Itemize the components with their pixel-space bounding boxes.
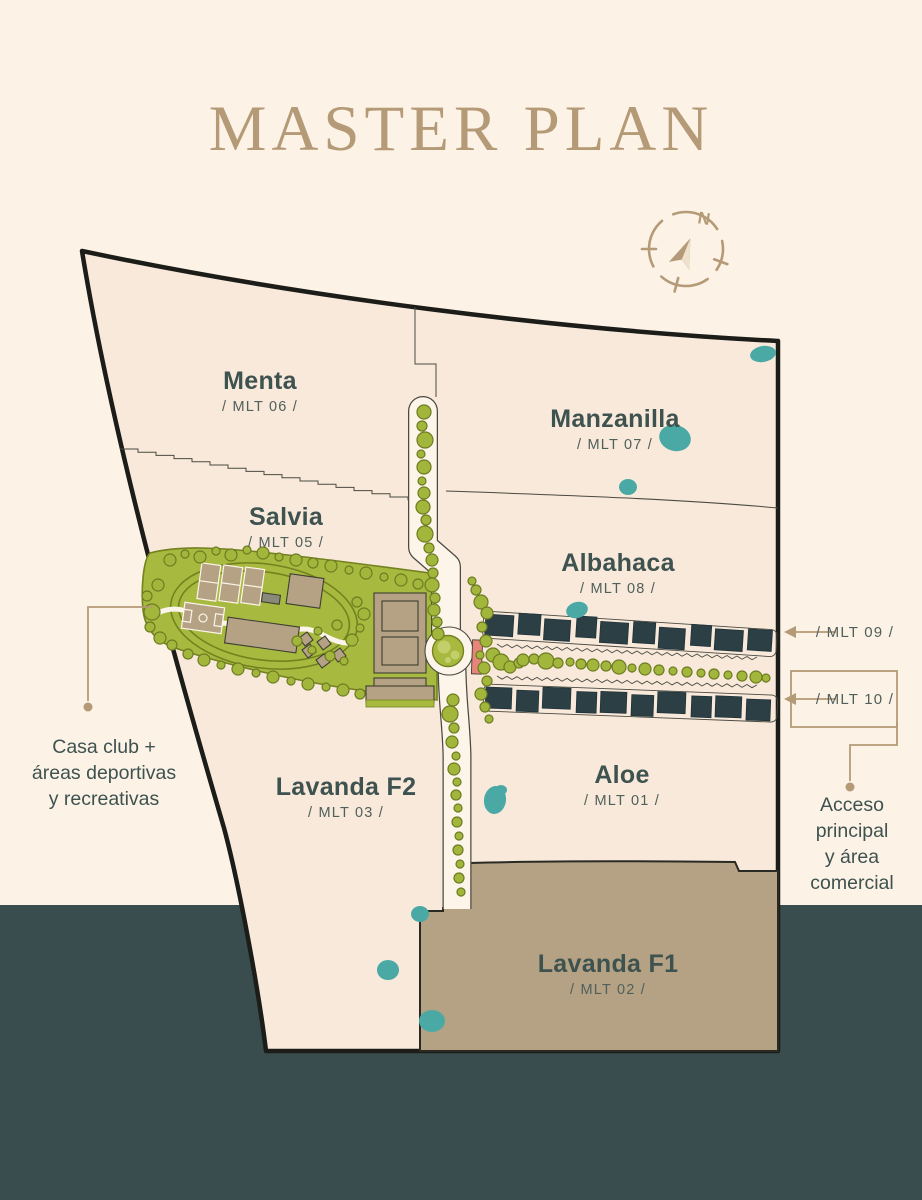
commercial-strip (366, 686, 434, 702)
tree-icon (446, 736, 458, 748)
tree-icon (154, 632, 166, 644)
tree-icon (421, 515, 431, 525)
tree-icon (417, 421, 427, 431)
tree-icon (217, 661, 225, 669)
tree-icon (654, 665, 664, 675)
tree-icon (252, 669, 260, 677)
club-building (286, 574, 324, 608)
mlt09-arrowhead-icon (784, 626, 796, 638)
callout-mlt09: / MLT 09 / (812, 624, 898, 641)
basketball-court (181, 602, 224, 633)
tree-icon (198, 654, 210, 666)
callout-mlt10: / MLT 10 / (812, 691, 898, 708)
tree-icon (538, 653, 554, 669)
tree-icon (416, 500, 430, 514)
acceso-note-line: Acceso (790, 792, 914, 818)
tree-icon (257, 547, 269, 559)
tree-icon (418, 487, 430, 499)
tree-icon (325, 560, 337, 572)
tree-icon (455, 832, 463, 840)
house-block (542, 687, 571, 709)
master-plan-page: MASTER PLAN (0, 0, 922, 1200)
tree-icon (453, 845, 463, 855)
tree-icon (576, 659, 586, 669)
tree-icon (225, 549, 237, 561)
tree-icon (428, 604, 440, 616)
acceso-note-line: comercial (790, 870, 914, 896)
compass-icon: N (642, 208, 727, 291)
tree-icon (417, 405, 431, 419)
house-block (747, 629, 772, 652)
tree-icon (709, 669, 719, 679)
roundabout-shrub (451, 651, 460, 660)
tree-icon (448, 763, 460, 775)
tree-icon (451, 790, 461, 800)
tree-icon (601, 661, 611, 671)
tree-icon (181, 550, 189, 558)
tree-icon (566, 658, 574, 666)
tree-icon (232, 663, 244, 675)
tree-icon (380, 573, 388, 581)
water-blob (619, 479, 637, 495)
house-block (746, 699, 771, 721)
tree-icon (340, 657, 348, 665)
tree-icon (426, 554, 438, 566)
casa-club-note-line: áreas deportivas (6, 760, 202, 786)
house-block (631, 695, 654, 717)
tree-icon (322, 683, 330, 691)
casa-club-note: Casa club + áreas deportivas y recreativ… (6, 734, 202, 812)
acceso-dot (846, 783, 855, 792)
house-block (715, 696, 742, 718)
tree-icon (275, 553, 283, 561)
house-block (690, 624, 711, 646)
tree-icon (337, 684, 349, 696)
roundabout-shrub (438, 641, 451, 654)
tree-icon (424, 543, 434, 553)
tree-icon (750, 671, 762, 683)
water-blob (419, 1010, 445, 1032)
tree-icon (308, 646, 316, 654)
tree-icon (425, 578, 439, 592)
tree-icon (669, 667, 677, 675)
tree-icon (314, 627, 322, 635)
water-blob (411, 906, 429, 922)
tree-icon (167, 640, 177, 650)
site-map: N (0, 0, 922, 1200)
tree-icon (145, 622, 155, 632)
tennis-courts (197, 561, 265, 607)
water-blob (377, 960, 399, 980)
tree-icon (290, 554, 302, 566)
tree-icon (454, 804, 462, 812)
compass-north-label: N (696, 208, 711, 229)
house-block (658, 627, 685, 650)
tree-icon (360, 567, 372, 579)
acceso-note-line: y área (790, 844, 914, 870)
mlt10-arrowhead-icon (784, 693, 796, 705)
tree-icon (468, 577, 476, 585)
tree-icon (457, 888, 465, 896)
tree-icon (447, 694, 459, 706)
tree-icon (697, 669, 705, 677)
green-strip (366, 700, 434, 707)
tree-icon (480, 635, 492, 647)
tree-icon (478, 662, 490, 674)
house-block (600, 691, 627, 713)
house-block (576, 616, 597, 638)
tree-icon (517, 654, 529, 666)
compass-tick (675, 278, 679, 292)
house-block (691, 696, 712, 718)
tree-icon (428, 568, 438, 578)
tree-icon (471, 585, 481, 595)
tree-icon (449, 723, 459, 733)
tree-icon (355, 689, 365, 699)
tree-icon (413, 579, 423, 589)
casa-club-connector (88, 607, 152, 701)
casa-club-dot (84, 703, 93, 712)
house-block (657, 692, 686, 714)
tree-icon (485, 715, 493, 723)
tree-icon (417, 450, 425, 458)
house-block (518, 613, 541, 635)
house-block (576, 691, 597, 713)
tree-icon (454, 873, 464, 883)
casa-club-note-line: Casa club + (6, 734, 202, 760)
tree-icon (529, 654, 539, 664)
acceso-note: Acceso principal y área comercial (790, 792, 914, 896)
compass-needle-icon (669, 234, 701, 270)
tree-icon (432, 617, 442, 627)
tree-icon (356, 624, 364, 632)
tree-icon (152, 579, 164, 591)
tree-icon (308, 558, 318, 568)
tree-icon (456, 860, 464, 868)
needle-dark (669, 234, 701, 270)
tree-icon (587, 659, 599, 671)
tree-icon (302, 678, 314, 690)
acceso-note-line: principal (790, 818, 914, 844)
tree-icon (345, 566, 353, 574)
court-floor (181, 602, 224, 633)
tree-icon (325, 651, 335, 661)
lavanda-f1-area (420, 861, 778, 1051)
tree-icon (346, 634, 358, 646)
tree-icon (142, 591, 152, 601)
tree-icon (480, 702, 490, 712)
tree-icon (432, 628, 444, 640)
water-blob (495, 785, 507, 795)
tree-icon (639, 663, 651, 675)
tree-icon (724, 671, 732, 679)
tree-icon (482, 676, 492, 686)
house-block (543, 619, 570, 642)
tree-icon (287, 677, 295, 685)
tree-icon (737, 671, 747, 681)
tree-icon (332, 620, 342, 630)
tree-icon (628, 664, 636, 672)
tree-icon (194, 551, 206, 563)
tree-icon (452, 817, 462, 827)
tree-icon (395, 574, 407, 586)
tree-icon (292, 636, 302, 646)
tree-icon (417, 526, 433, 542)
tree-icon (476, 651, 484, 659)
tree-icon (430, 593, 440, 603)
tree-icon (553, 658, 563, 668)
tree-icon (183, 649, 193, 659)
tree-icon (417, 432, 433, 448)
casa-club-note-line: y recreativas (6, 786, 202, 812)
tree-icon (358, 608, 370, 620)
tree-icon (164, 554, 176, 566)
roundabout-shrub (445, 657, 451, 663)
tree-icon (417, 460, 431, 474)
house-block (516, 690, 539, 712)
tree-icon (418, 477, 426, 485)
club-pavilion (261, 593, 280, 604)
tree-icon (243, 546, 251, 554)
house-block (599, 621, 628, 644)
tree-icon (481, 607, 493, 619)
tree-icon (452, 752, 460, 760)
tree-icon (762, 674, 770, 682)
commercial-buildings (366, 593, 434, 707)
house-block (632, 622, 655, 644)
house-block (714, 629, 743, 652)
tree-icon (267, 671, 279, 683)
tree-icon (352, 597, 362, 607)
tree-icon (477, 622, 487, 632)
tree-icon (453, 778, 461, 786)
tree-icon (442, 706, 458, 722)
acceso-connector (850, 722, 897, 781)
tree-icon (682, 667, 692, 677)
tree-icon (212, 547, 220, 555)
tree-icon (475, 688, 487, 700)
tree-icon (612, 660, 626, 674)
